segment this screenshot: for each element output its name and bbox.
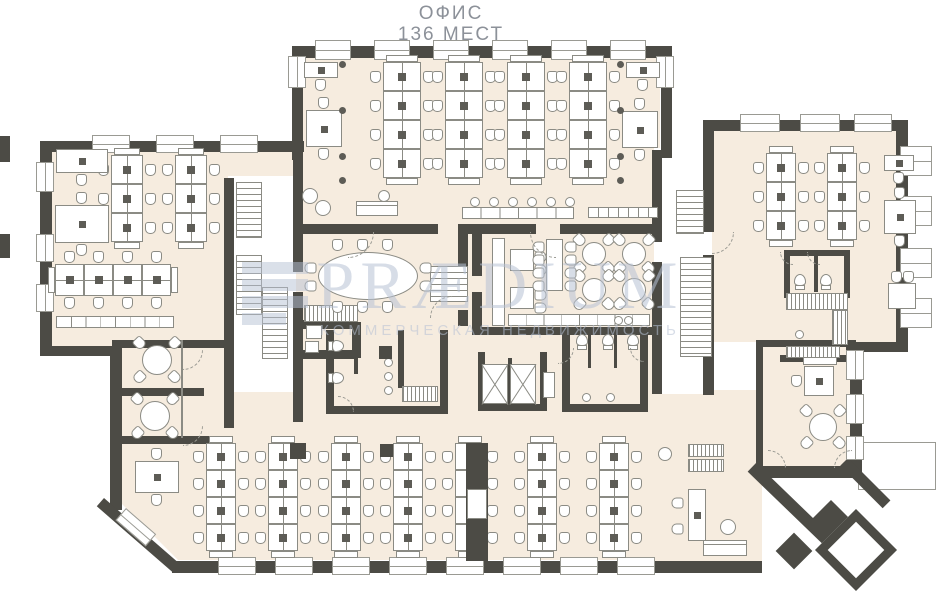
chair xyxy=(753,191,764,203)
bench-end-panel xyxy=(396,551,420,558)
wall xyxy=(354,330,358,374)
sink-icon xyxy=(384,386,393,395)
bench-end-panel xyxy=(396,436,420,443)
shelving-unit xyxy=(304,305,358,322)
window xyxy=(315,40,351,60)
chair xyxy=(442,478,453,490)
monitor xyxy=(610,480,618,488)
chair xyxy=(514,532,525,544)
wall xyxy=(112,388,204,396)
chair xyxy=(332,239,343,251)
chair xyxy=(859,191,870,203)
floor-plan-canvas xyxy=(0,0,940,596)
staircase xyxy=(236,182,262,238)
monitor xyxy=(460,160,468,168)
wall xyxy=(40,346,120,356)
chair xyxy=(609,71,620,83)
wall xyxy=(640,330,648,412)
wall xyxy=(110,348,122,510)
monitor xyxy=(398,73,406,81)
round-table xyxy=(622,278,646,302)
bench-end-panel xyxy=(114,242,140,249)
chair xyxy=(893,172,904,184)
chair xyxy=(631,505,642,517)
monitor xyxy=(584,131,592,139)
toilet-bowl xyxy=(332,372,344,384)
chair xyxy=(209,222,220,234)
column-dot xyxy=(339,107,346,114)
shelving-unit xyxy=(688,459,724,472)
toilet-icon xyxy=(576,334,588,350)
staircase xyxy=(680,257,712,357)
wall xyxy=(562,330,570,412)
monitor xyxy=(279,507,287,515)
shelving-unit xyxy=(688,444,724,457)
bench-end-panel xyxy=(602,436,626,443)
chair xyxy=(442,505,453,517)
monitor xyxy=(187,166,195,174)
chair xyxy=(300,532,311,544)
chair xyxy=(487,505,498,517)
bench-end-panel xyxy=(769,146,793,153)
sink-icon xyxy=(384,358,393,367)
monitor xyxy=(522,160,530,168)
chair xyxy=(255,451,266,463)
chair xyxy=(300,505,311,517)
bench-end-panel xyxy=(510,55,542,62)
structural-column xyxy=(379,346,392,359)
column-dot xyxy=(617,107,624,114)
monitor xyxy=(123,166,131,174)
chair xyxy=(193,505,204,517)
bench-end-panel xyxy=(572,55,604,62)
toilet-tank xyxy=(328,373,333,383)
wall xyxy=(224,178,234,428)
monitor xyxy=(404,480,412,488)
chair xyxy=(514,451,525,463)
chair xyxy=(514,478,525,490)
chair xyxy=(300,478,311,490)
monitor xyxy=(217,507,225,515)
wall xyxy=(472,224,482,276)
chair xyxy=(814,162,825,174)
chair xyxy=(162,164,173,176)
toilet-bowl xyxy=(332,340,344,352)
chair xyxy=(494,129,505,141)
chair xyxy=(370,71,381,83)
bench-end-panel xyxy=(114,148,140,155)
wall xyxy=(458,310,468,326)
counter xyxy=(803,357,837,365)
chair xyxy=(565,255,577,266)
chair xyxy=(791,375,802,387)
monitor xyxy=(123,224,131,232)
bench-end-panel xyxy=(530,436,554,443)
bench-end-panel xyxy=(171,267,178,293)
counter xyxy=(588,207,658,218)
toilet-icon xyxy=(328,372,344,384)
chair xyxy=(151,494,162,506)
monitor xyxy=(522,131,530,139)
chair xyxy=(76,244,87,256)
chair xyxy=(255,505,266,517)
shelving-unit xyxy=(832,310,848,345)
round-table xyxy=(809,413,837,441)
round-table xyxy=(582,242,606,266)
monitor xyxy=(404,534,412,542)
monitor xyxy=(398,102,406,110)
toilet-icon xyxy=(328,340,344,352)
chair xyxy=(370,100,381,112)
chair xyxy=(565,268,577,279)
monitor xyxy=(522,73,530,81)
chair xyxy=(634,149,645,161)
chair xyxy=(357,301,368,313)
monitor xyxy=(610,453,618,461)
monitor xyxy=(279,453,287,461)
chair xyxy=(432,100,443,112)
wall xyxy=(652,150,662,242)
chair xyxy=(432,129,443,141)
chair xyxy=(255,532,266,544)
chair xyxy=(380,532,391,544)
chair xyxy=(238,505,249,517)
column-dot xyxy=(339,61,346,68)
monitor xyxy=(777,193,785,201)
chair xyxy=(859,162,870,174)
chair xyxy=(238,532,249,544)
window xyxy=(846,350,864,380)
office-desk xyxy=(888,283,916,309)
chair xyxy=(370,158,381,170)
chair xyxy=(363,532,374,544)
pouf xyxy=(658,447,672,461)
vestibule-block xyxy=(776,533,813,570)
window xyxy=(389,557,427,575)
chair xyxy=(420,281,432,292)
chair xyxy=(672,524,684,535)
chair xyxy=(535,303,547,314)
monitor xyxy=(217,453,225,461)
monitor xyxy=(123,195,131,203)
monitor xyxy=(838,164,846,172)
window xyxy=(220,135,258,153)
monitor xyxy=(610,534,618,542)
structural-column xyxy=(290,443,306,459)
chair xyxy=(487,532,498,544)
chair xyxy=(891,271,902,283)
chair xyxy=(556,158,567,170)
window xyxy=(503,557,541,575)
chair xyxy=(559,451,570,463)
chair xyxy=(145,222,156,234)
window xyxy=(617,557,655,575)
window xyxy=(610,40,646,60)
monitor xyxy=(460,73,468,81)
stool xyxy=(546,197,556,207)
chair xyxy=(122,251,133,263)
chair xyxy=(637,79,648,91)
chair xyxy=(255,478,266,490)
chair xyxy=(318,148,329,160)
chair xyxy=(798,162,809,174)
chair xyxy=(533,281,545,292)
chair xyxy=(556,71,567,83)
wall xyxy=(688,561,762,573)
chair xyxy=(93,251,104,263)
chair xyxy=(145,164,156,176)
chair xyxy=(151,251,162,263)
chair xyxy=(556,129,567,141)
bench-end-panel xyxy=(178,242,204,249)
chair xyxy=(93,297,104,309)
monitor xyxy=(217,534,225,542)
monitor xyxy=(816,378,823,385)
chair xyxy=(363,505,374,517)
chair xyxy=(305,281,317,292)
monitor xyxy=(460,131,468,139)
chair xyxy=(494,100,505,112)
chair xyxy=(859,220,870,232)
chair xyxy=(151,448,162,460)
monitor xyxy=(318,67,325,74)
window xyxy=(218,557,256,575)
chair xyxy=(209,193,220,205)
bench-end-panel xyxy=(448,178,480,185)
high-table xyxy=(467,489,487,519)
cabinet xyxy=(305,341,319,353)
bench-end-panel xyxy=(448,55,480,62)
chair xyxy=(631,532,642,544)
monitor xyxy=(896,160,903,167)
monitor xyxy=(398,131,406,139)
monitor xyxy=(66,276,74,284)
monitor xyxy=(79,221,86,228)
window xyxy=(332,557,370,575)
chair xyxy=(64,297,75,309)
chair xyxy=(559,478,570,490)
window xyxy=(275,557,313,575)
chair xyxy=(64,251,75,263)
bench-end-panel xyxy=(271,436,295,443)
bench-end-panel xyxy=(386,55,418,62)
staircase xyxy=(236,255,262,315)
monitor xyxy=(777,164,785,172)
monitor xyxy=(610,507,618,515)
toilet-tank xyxy=(328,341,333,351)
monitor xyxy=(637,127,644,134)
monitor xyxy=(538,453,546,461)
chair xyxy=(586,478,597,490)
chair xyxy=(332,301,343,313)
office-desk xyxy=(510,287,534,309)
column-dot xyxy=(339,177,346,184)
chair xyxy=(122,297,133,309)
monitor xyxy=(538,507,546,515)
chair xyxy=(814,220,825,232)
pouf xyxy=(315,200,331,216)
monitor xyxy=(279,480,287,488)
wall xyxy=(293,150,303,272)
chair xyxy=(609,129,620,141)
monitor xyxy=(342,453,350,461)
chair xyxy=(380,505,391,517)
chair xyxy=(753,162,764,174)
monitor xyxy=(838,222,846,230)
chair xyxy=(305,263,317,274)
pouf xyxy=(720,519,736,535)
sofa-back xyxy=(356,201,398,206)
toilet-icon xyxy=(820,274,832,290)
monitor xyxy=(279,534,287,542)
chair xyxy=(425,532,436,544)
chair xyxy=(556,100,567,112)
sink-icon xyxy=(624,316,633,325)
window xyxy=(740,114,780,132)
monitor xyxy=(79,158,86,165)
wall xyxy=(478,404,547,411)
monitor xyxy=(187,224,195,232)
monitor xyxy=(460,102,468,110)
cabinet xyxy=(543,372,555,398)
chair xyxy=(315,79,326,91)
window xyxy=(854,114,892,132)
toilet-icon xyxy=(602,334,614,350)
chair xyxy=(894,235,905,247)
chair xyxy=(193,532,204,544)
monitor xyxy=(321,126,328,133)
bench-end-panel xyxy=(830,146,854,153)
wall xyxy=(652,262,662,394)
chair xyxy=(382,301,393,313)
monitor xyxy=(538,534,546,542)
monitor xyxy=(187,195,195,203)
stool xyxy=(489,197,499,207)
pouf xyxy=(378,190,390,202)
shelving-unit xyxy=(786,293,848,310)
wall xyxy=(398,330,404,388)
chair xyxy=(380,478,391,490)
stool xyxy=(527,197,537,207)
chair xyxy=(631,451,642,463)
monitor xyxy=(398,160,406,168)
wall xyxy=(703,120,714,232)
monitor xyxy=(217,480,225,488)
chair xyxy=(586,505,597,517)
toilet-tank xyxy=(577,345,587,350)
monitor xyxy=(838,193,846,201)
toilet-tank xyxy=(821,285,831,290)
chair xyxy=(162,193,173,205)
chair xyxy=(318,532,329,544)
column-dot xyxy=(339,153,346,160)
bench-end-panel xyxy=(458,436,482,443)
chair xyxy=(798,220,809,232)
chair xyxy=(420,263,432,274)
monitor xyxy=(694,512,701,519)
chair xyxy=(559,532,570,544)
bench-end-panel xyxy=(334,436,358,443)
window xyxy=(800,114,840,132)
monitor xyxy=(584,102,592,110)
chair xyxy=(98,193,109,205)
sink-icon xyxy=(795,330,804,339)
column-dot xyxy=(617,61,624,68)
chair xyxy=(370,129,381,141)
round-table xyxy=(622,242,646,266)
wall xyxy=(614,330,617,368)
monitor xyxy=(153,276,161,284)
stool xyxy=(470,197,480,207)
wall xyxy=(562,404,648,412)
monitor xyxy=(897,214,904,221)
chair xyxy=(162,222,173,234)
chair xyxy=(753,220,764,232)
toilet-tank xyxy=(795,285,805,290)
chair xyxy=(193,478,204,490)
chair xyxy=(894,187,905,199)
monitor xyxy=(522,102,530,110)
chair xyxy=(238,478,249,490)
round-table xyxy=(140,401,170,431)
chair xyxy=(382,239,393,251)
cabinet xyxy=(306,325,322,339)
chair xyxy=(494,158,505,170)
toilet-icon xyxy=(794,274,806,290)
bench-end-panel xyxy=(209,436,233,443)
counter xyxy=(492,238,505,326)
bench-end-panel xyxy=(530,551,554,558)
chair xyxy=(238,451,249,463)
toilet-tank xyxy=(603,345,613,350)
chair xyxy=(425,478,436,490)
structural-column xyxy=(0,136,10,162)
staircase xyxy=(676,190,704,234)
monitor xyxy=(154,474,161,481)
meeting-table xyxy=(318,252,418,300)
chair xyxy=(76,192,87,204)
bench-end-panel xyxy=(510,178,542,185)
chair xyxy=(432,71,443,83)
stool xyxy=(565,197,575,207)
chair xyxy=(494,71,505,83)
monitor xyxy=(538,480,546,488)
bench-end-panel xyxy=(602,551,626,558)
column-dot xyxy=(617,177,624,184)
monitor xyxy=(404,453,412,461)
sink-icon xyxy=(582,393,591,402)
shelving-unit xyxy=(786,346,840,358)
bench-end-panel xyxy=(178,148,204,155)
window xyxy=(36,162,54,192)
chair xyxy=(442,532,453,544)
wall xyxy=(588,330,591,368)
chair xyxy=(903,271,914,283)
floor-plan: ОФИС 136 МЕСТ PRÆDIUM КОММЕРЧЕСКАЯ НЕДВИ… xyxy=(0,0,940,596)
staircase xyxy=(262,287,288,359)
window xyxy=(560,557,598,575)
monitor xyxy=(95,276,103,284)
stool xyxy=(508,197,518,207)
counter xyxy=(56,316,174,328)
monitor xyxy=(584,73,592,81)
sink-icon xyxy=(384,372,393,381)
chair xyxy=(565,242,577,253)
chair xyxy=(814,191,825,203)
bench-end-panel xyxy=(769,240,793,247)
bench-end-panel xyxy=(830,240,854,247)
chair xyxy=(559,505,570,517)
